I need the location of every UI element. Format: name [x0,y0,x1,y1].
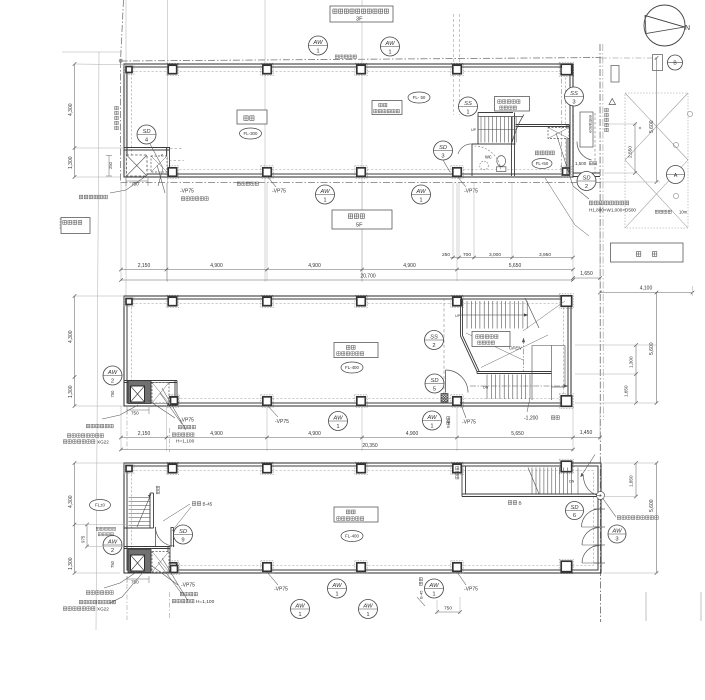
svg-text:B-45: B-45 [419,590,424,599]
svg-text:1,650: 1,650 [624,385,629,397]
svg-text:1,300: 1,300 [68,557,74,570]
svg-text:SD: SD [439,145,447,151]
svg-text:AW: AW [331,583,342,589]
svg-text:2,550: 2,550 [628,146,634,158]
svg-text:1: 1 [430,423,433,429]
svg-text:FL-400: FL-400 [345,365,359,370]
svg-text:750: 750 [110,560,115,568]
svg-text:-VP75: -VP75 [462,420,476,426]
svg-text:4,900: 4,900 [308,263,321,269]
svg-text:FL-300: FL-300 [244,131,258,136]
svg-text:XG22: XG22 [97,607,109,612]
svg-text:9: 9 [181,537,184,543]
svg-text:AW: AW [319,189,330,195]
svg-text:750: 750 [444,606,452,612]
svg-text:1: 1 [298,612,301,618]
svg-text:750: 750 [110,390,115,398]
svg-text:3: 3 [441,153,444,159]
svg-text:1: 1 [316,48,319,54]
svg-text:10m: 10m [679,210,688,215]
svg-text:3F: 3F [356,17,363,23]
svg-text:5,650: 5,650 [511,431,524,437]
svg-text:750: 750 [131,182,139,187]
svg-text:B-45: B-45 [203,502,213,507]
svg-text:1,300: 1,300 [629,356,634,368]
svg-text:FL-400: FL-400 [345,534,359,539]
svg-text:entrance: entrance [588,115,593,133]
svg-text:4,300: 4,300 [68,103,74,116]
svg-text:1: 1 [419,197,422,203]
svg-text:250: 250 [442,252,450,258]
svg-text:4,100: 4,100 [640,286,653,292]
svg-text:2: 2 [111,378,114,384]
svg-text:2,150: 2,150 [138,431,151,437]
svg-text:2: 2 [585,184,588,190]
svg-text:975: 975 [81,535,86,543]
svg-text:1,300: 1,300 [68,156,74,169]
svg-text:1,500: 1,500 [575,161,587,166]
svg-text:1: 1 [466,109,469,115]
svg-text:FL- 50: FL- 50 [413,95,426,100]
svg-text:SD: SD [430,378,438,384]
svg-text:3: 3 [615,536,618,542]
svg-text:SS: SS [570,91,578,97]
svg-text:5: 5 [433,386,436,392]
svg-text:-VP75: -VP75 [180,189,194,195]
svg-text:SS: SS [464,101,472,107]
svg-text:-VP75: -VP75 [180,418,194,424]
svg-text:AW: AW [312,40,323,46]
svg-text:4,900: 4,900 [210,431,223,437]
svg-text:FL±0: FL±0 [95,503,106,508]
svg-text:1,450: 1,450 [580,430,593,436]
svg-text:SS: SS [430,334,438,340]
svg-text:AW: AW [294,603,305,609]
svg-text:750: 750 [131,411,139,416]
svg-text:5F: 5F [356,223,363,229]
svg-text:1,300: 1,300 [68,385,74,398]
svg-text:5,600: 5,600 [649,342,655,355]
svg-text:-VP75: -VP75 [464,189,478,195]
svg-text:6: 6 [573,513,576,519]
svg-text:DN: DN [569,480,575,484]
svg-text:1: 1 [336,424,339,430]
svg-text:20,700: 20,700 [360,274,376,280]
svg-text:SD: SD [142,129,150,135]
svg-text:H1,800×W1,000×D500: H1,800×W1,000×D500 [589,208,636,213]
svg-text:5,600: 5,600 [649,499,655,512]
svg-text:AW: AW [428,583,439,589]
svg-text:AW: AW [107,370,118,376]
svg-text:5,650: 5,650 [509,263,522,269]
svg-text:1: 1 [323,197,326,203]
svg-text:1: 1 [366,612,369,618]
svg-text:4,900: 4,900 [403,263,416,269]
svg-text:wc: wc [484,155,492,161]
svg-text:4,900: 4,900 [210,263,223,269]
svg-text:B: B [519,501,522,506]
svg-text:1,650: 1,650 [580,271,593,277]
svg-text:1: 1 [432,591,435,597]
svg-text:XG22: XG22 [97,440,109,445]
svg-text:AW: AW [384,41,395,47]
svg-text:4,900: 4,900 [308,431,321,437]
svg-text:2,150: 2,150 [138,263,151,269]
svg-text:1: 1 [335,591,338,597]
svg-text:AW: AW [611,528,622,534]
svg-text:3: 3 [572,99,575,105]
svg-text:2: 2 [432,343,435,349]
svg-text:AW: AW [362,603,373,609]
svg-text:4,900: 4,900 [406,431,419,437]
svg-text:FL+50: FL+50 [536,161,549,166]
svg-text:20,350: 20,350 [362,443,378,449]
svg-text:SD: SD [582,175,590,181]
svg-text:3,950: 3,950 [539,252,551,258]
svg-text:N: N [685,25,690,32]
svg-text:700: 700 [463,252,471,258]
svg-text:3,000: 3,000 [489,252,501,258]
svg-text:5,600: 5,600 [649,120,655,133]
svg-text:SD: SD [570,505,578,511]
svg-text:2: 2 [111,548,114,554]
svg-text:OPEN: OPEN [509,346,522,351]
svg-text:AW: AW [426,415,437,421]
svg-text:A: A [674,173,678,179]
svg-text:B-45: B-45 [446,419,451,428]
svg-text:AW: AW [332,415,343,421]
svg-text:-1,200: -1,200 [524,416,538,422]
svg-text:1: 1 [388,49,391,55]
svg-text:SD: SD [179,529,187,535]
svg-text:H=1,100: H=1,100 [176,439,195,445]
svg-text:4,300: 4,300 [68,330,74,343]
svg-text:-VP75: -VP75 [464,587,478,593]
svg-text:UP: UP [471,128,477,132]
svg-text:-VP75: -VP75 [272,189,286,195]
svg-text:-VP75: -VP75 [274,587,288,593]
svg-text:AW: AW [415,189,426,195]
svg-text:UP: UP [455,314,461,318]
svg-text:-VP75: -VP75 [275,419,289,425]
svg-text:4,300: 4,300 [68,495,74,508]
svg-text:1,850: 1,850 [629,475,634,487]
svg-text:H=1,100: H=1,100 [196,599,215,605]
svg-text:-VP75: -VP75 [181,583,195,589]
svg-text:DN: DN [483,386,489,390]
svg-text:AW: AW [107,539,118,545]
